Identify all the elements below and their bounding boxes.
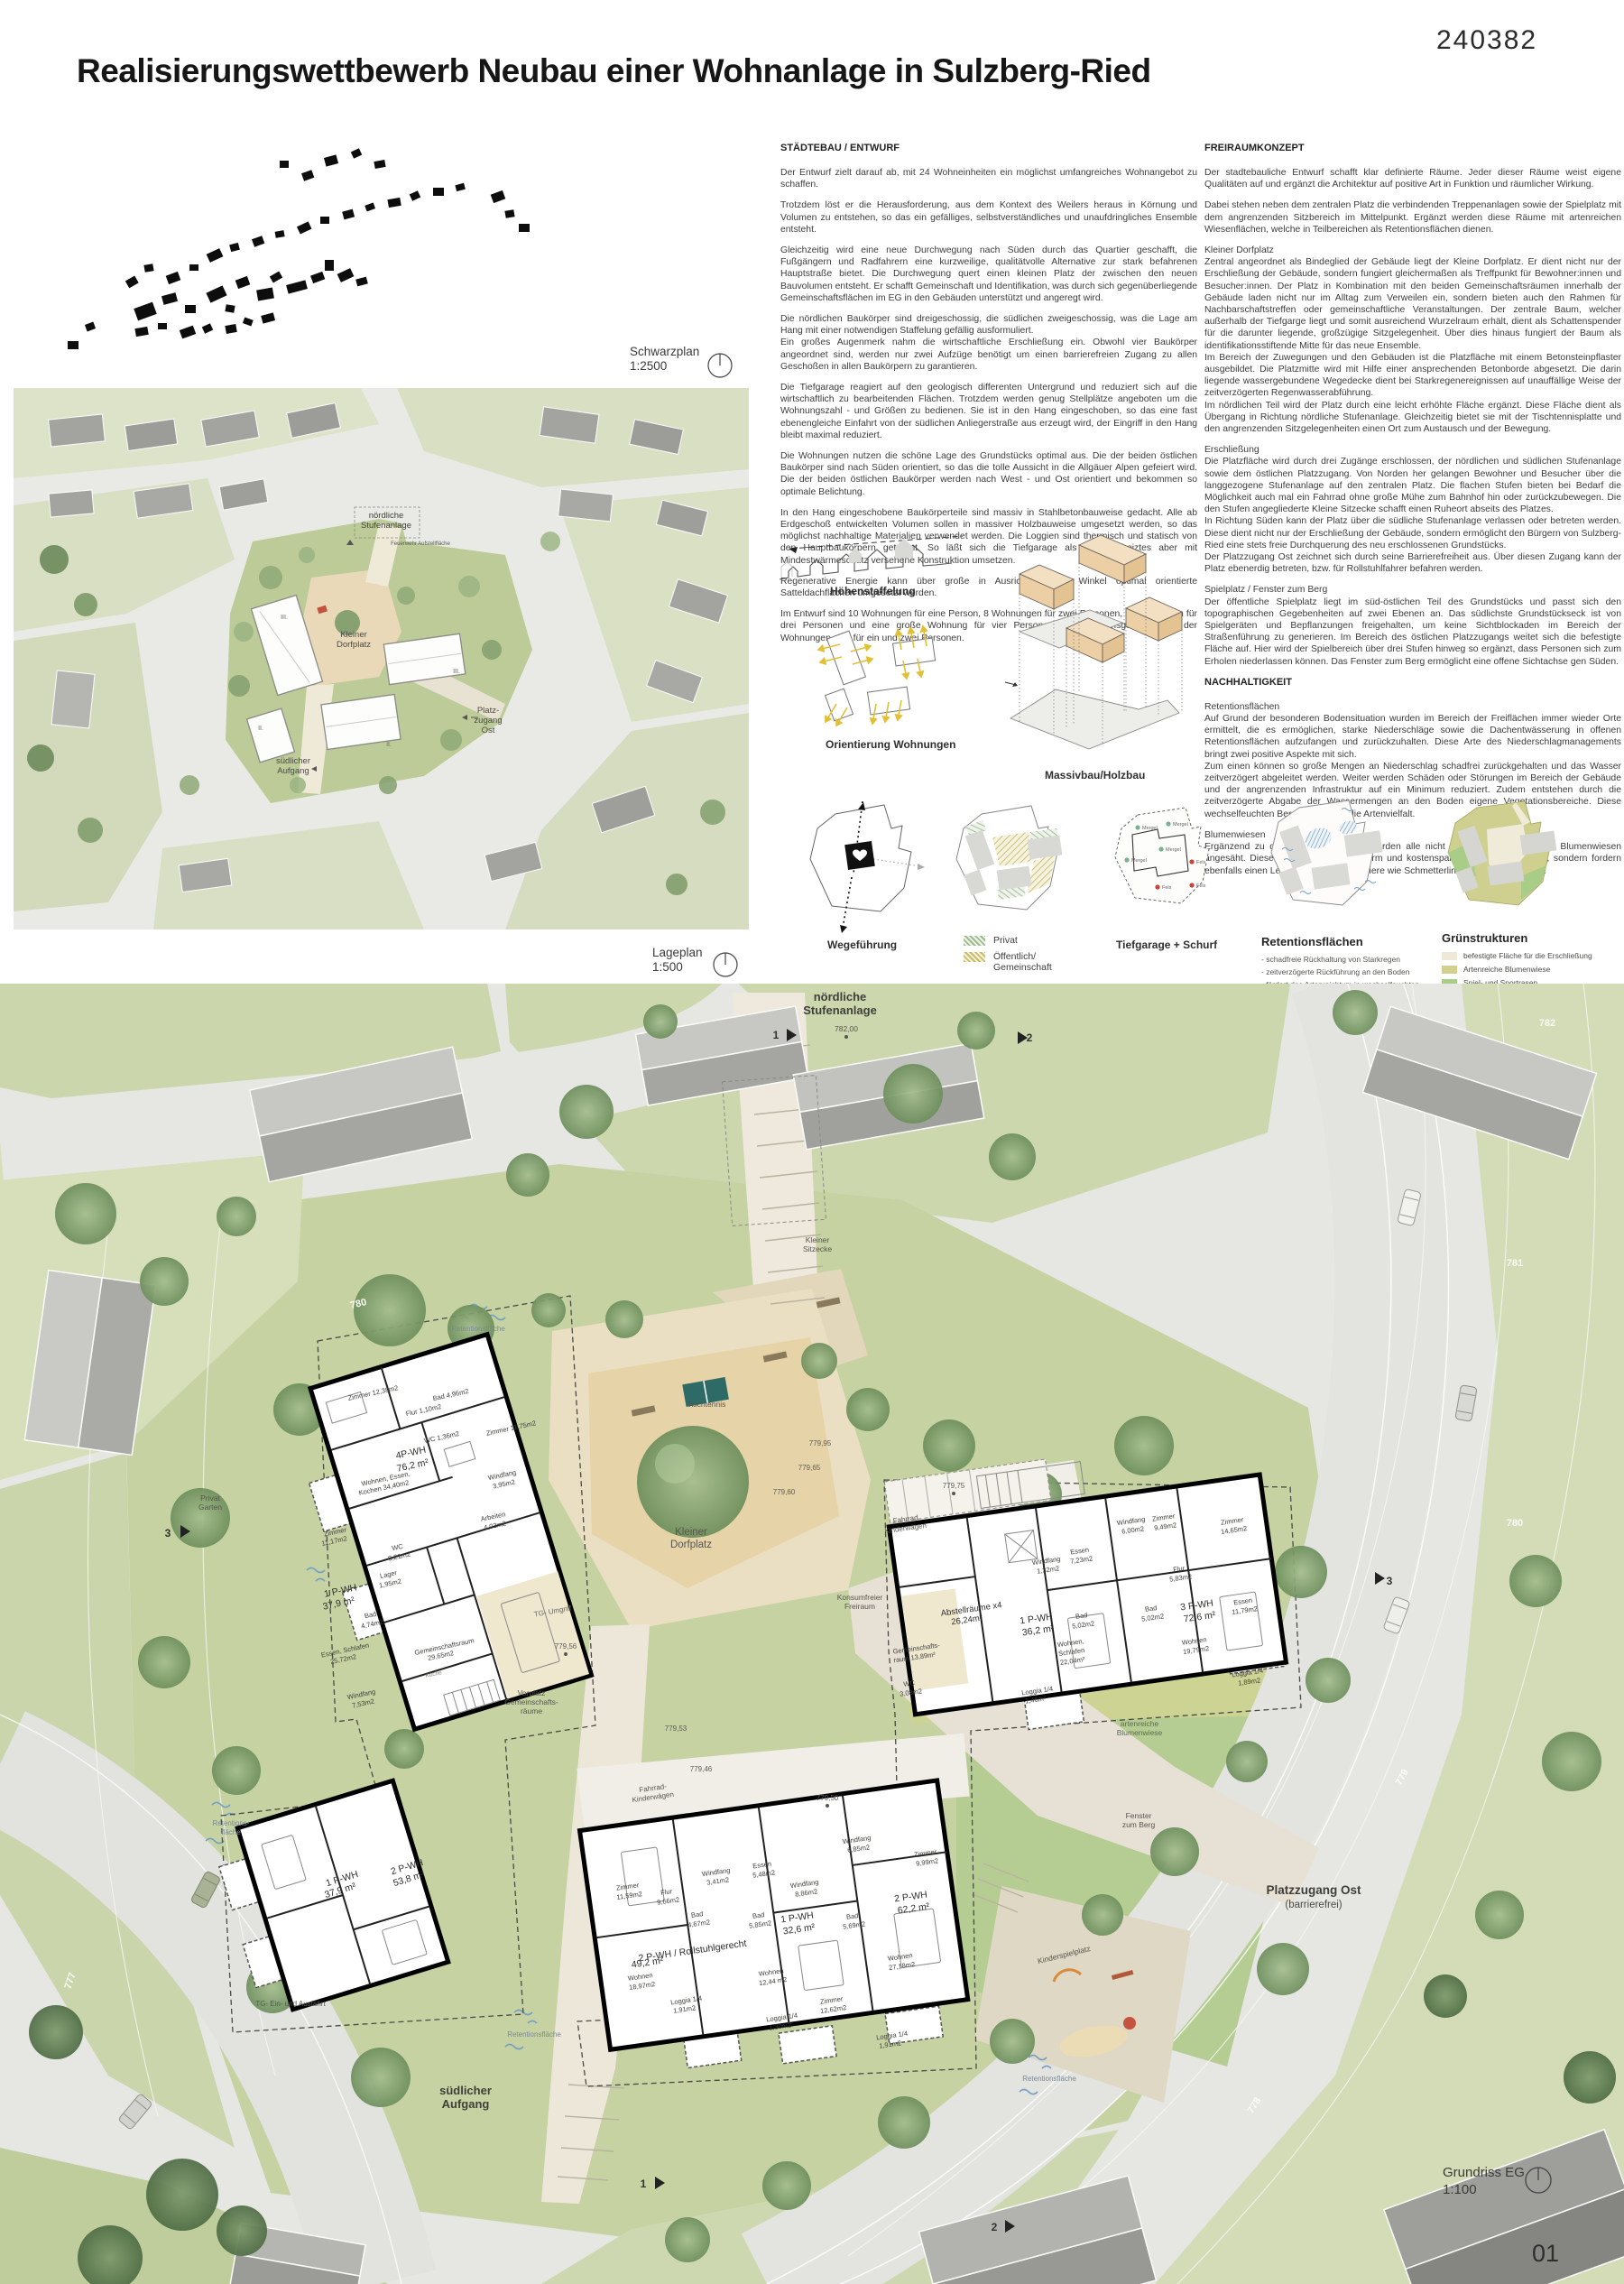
plan-label: Aufgang: [442, 2097, 490, 2111]
legend-oeff-label: Öffentlich/Gemeinschaft: [993, 951, 1052, 973]
diagram-wegefuehrung: [801, 801, 927, 935]
column-heading: FREIRAUMKONZEPT: [1204, 143, 1621, 155]
plan-label: 779,56: [555, 1642, 577, 1651]
plan-label: Kleiner: [675, 1527, 707, 1538]
lageplan-caption: Lageplan 1:500: [652, 946, 703, 974]
legend-oeff-line2: Gemeinschaft: [993, 962, 1052, 973]
page-title: Realisierungswettbewerb Neubau einer Woh…: [77, 52, 1151, 90]
plan-label: 3: [1387, 1575, 1393, 1587]
column-paragraph: Der Entwurf zielt darauf ab, mit 24 Wohn…: [780, 167, 1197, 190]
svg-text:Fels: Fels: [1196, 883, 1206, 889]
plan-label: Blumenwiese: [1117, 1728, 1163, 1737]
plan-label: zum Berg: [1122, 1820, 1156, 1829]
plan-label: 779,75: [943, 1482, 965, 1490]
column-paragraph: Die Tiefgarage reagiert auf den geologis…: [780, 382, 1197, 441]
plan-label: Kleiner: [340, 630, 367, 640]
plan-label: 779,95: [809, 1439, 832, 1447]
plan-label: Retentions-: [213, 1819, 250, 1827]
diagram-tiefgarage: Mergel Mergel Mergel Mergel Fels Fels Fe…: [1105, 806, 1227, 919]
column-paragraph: Der Platzzugang Ost zeichnet sich durch …: [1204, 551, 1621, 575]
privat-swatch: [964, 936, 985, 946]
svg-text:Mergel: Mergel: [1166, 847, 1181, 853]
column-paragraph: Die nördlichen Baukörper sind dreigescho…: [780, 313, 1197, 337]
plan-label: Ost: [482, 726, 495, 735]
plan-label: Bad: [752, 1910, 764, 1920]
diagram-hoehenstaffelung: [778, 532, 990, 587]
plan-label: Retentionsfläche: [507, 2030, 561, 2039]
plan-label: 779,50: [817, 1794, 839, 1802]
plan-label: III.: [453, 669, 460, 675]
plan-label: Bad: [1144, 1604, 1157, 1614]
plan-label: TG- Ein- und Ausfahrt: [255, 2000, 326, 2008]
plan-label: 780: [1507, 1518, 1523, 1529]
plan-label: Platz-: [477, 706, 499, 716]
plan-label: südlicher: [276, 756, 310, 766]
column-subheading: Spielplatz / Fenster zum Berg: [1204, 584, 1621, 596]
plan-label: 782,00: [835, 1024, 858, 1033]
plan-label: Grundriss EG: [1443, 2165, 1525, 2180]
plan-label: 3: [165, 1527, 171, 1540]
plan-label: Feuerwehr Aufstellfläche: [391, 541, 450, 547]
plan-label: 779,53: [665, 1725, 687, 1733]
column-freiraum: FREIRAUMKONZEPTDer stadtebauliche Entwur…: [1204, 143, 1621, 886]
schwarzplan-caption: Schwarzplan 1:2500: [630, 345, 699, 373]
plan-label: II.: [386, 742, 392, 748]
gruen-legend-label: befestigte Fläche für die Erschließung: [1463, 951, 1592, 960]
svg-text:Mergel: Mergel: [1142, 826, 1158, 831]
plan-label: II.: [258, 726, 263, 732]
plan-label: Aufgang: [277, 766, 309, 776]
column-paragraph: In Richtung Süden kann der Platz über di…: [1204, 515, 1621, 551]
plan-label: Kleiner: [806, 1235, 830, 1244]
plan-label: Retentionsfläche: [1022, 2075, 1076, 2083]
plan-label: 779,65: [798, 1464, 821, 1472]
plan-label: (barrierefrei): [1285, 1900, 1342, 1910]
retention-bullet: - zeitverzögerte Rückführung an den Bode…: [1261, 967, 1442, 976]
nutzung-legend: Privat Öffentlich/Gemeinschaft: [964, 935, 1117, 978]
column-paragraph: Dabei stehen neben dem zentralen Platz d…: [1204, 199, 1621, 236]
befestigt-swatch: [1442, 952, 1457, 960]
diagram-orientierung: [807, 621, 952, 736]
lageplan-caption-name: Lageplan: [652, 946, 703, 960]
plan-label: 782: [1539, 1018, 1555, 1029]
plan-label: Stufenanlage: [803, 1003, 877, 1017]
diagram-gruen: [1436, 799, 1581, 918]
plan-label: 1: [773, 1029, 780, 1041]
plan-label: 781: [1507, 1258, 1523, 1269]
plan-label: 779,46: [690, 1765, 713, 1773]
column-paragraph: Im Bereich der Zuwegungen und den Gebäud…: [1204, 352, 1621, 400]
board-number: 240382: [1436, 25, 1537, 56]
column-paragraph: Zentral angeordnet als Bindeglied der Ge…: [1204, 256, 1621, 352]
plan-label: Garten: [198, 1503, 222, 1512]
plan-label: Flur: [1173, 1564, 1186, 1574]
plan-label: Sitzecke: [803, 1244, 832, 1253]
diagram-caption-hoehenstaffelung: Höhenstaffelung: [830, 585, 916, 597]
retention-bullet: - schadfreie Rückhaltung von Starkregen: [1261, 955, 1442, 964]
column-heading: STÄDTEBAU / ENTWURF: [780, 143, 1197, 155]
competition-board: { "header": { "board_number": "240382", …: [0, 0, 1624, 2284]
diagram-caption-tiefgarage: Tiefgarage + Schurf: [1116, 939, 1217, 951]
plan-label: III.: [281, 615, 288, 621]
svg-text:Mergel: Mergel: [1131, 858, 1147, 864]
plan-label: Freiraum: [844, 1602, 875, 1611]
schwarzplan-figure: [54, 116, 641, 386]
plan-label: 2: [992, 2221, 998, 2233]
plan-label: Tischtennis: [687, 1400, 726, 1409]
plan-label: nördliche: [814, 990, 867, 1003]
plan-label: 779,60: [773, 1488, 796, 1496]
column-paragraph: Die Wohnungen nutzen die schöne Lage des…: [780, 450, 1197, 498]
column-subheading: Erschließung: [1204, 444, 1621, 456]
column-subheading: Kleiner Dorfplatz: [1204, 245, 1621, 256]
plaza-tree: [637, 1426, 749, 1538]
svg-text:Fels: Fels: [1196, 860, 1206, 865]
column-paragraph: Ein großes Augenmerk nahm die wirtschaft…: [780, 337, 1197, 373]
north-arrow-icon: [706, 352, 734, 379]
legend-oeff-line1: Öffentlich/: [993, 951, 1052, 962]
plan-label: 1:100: [1443, 2182, 1477, 2197]
plan-label: 1: [641, 2178, 647, 2190]
column-paragraph: Der öffentliche Spielplatz liegt im süd-…: [1204, 596, 1621, 668]
plan-label: Flur: [660, 1887, 674, 1897]
diagram-nutzung: [946, 803, 1081, 928]
diagram-caption-retention: Retentionsflächen: [1261, 935, 1363, 948]
lageplan-caption-scale: 1:500: [652, 960, 703, 975]
plan-label: Dorfplatz: [670, 1540, 712, 1550]
column-paragraph: Gleichzeitig wird eine neue Durchwegung …: [780, 245, 1197, 304]
plan-label: Vorplatz: [518, 1688, 546, 1697]
plan-label: räume: [521, 1706, 542, 1715]
plan-label: zugang: [474, 716, 502, 726]
column-paragraph: Die Platzfläche wird durch drei Zugänge …: [1204, 456, 1621, 515]
plan-label: Gemeinschafts-: [504, 1697, 558, 1706]
plan-label: Platzzugang Ost: [1266, 1883, 1361, 1897]
gruen-legend-label: Artenreiche Blumenwiese: [1463, 965, 1550, 974]
column-heading: NACHHALTIGKEIT: [1204, 677, 1621, 689]
column-subheading: Retentionsflächen: [1204, 701, 1621, 713]
plan-label: südlicher: [439, 2084, 492, 2097]
svg-text:Mergel: Mergel: [1173, 822, 1188, 828]
diagram-retention: [1259, 797, 1407, 923]
plan-label: Dorfplatz: [337, 640, 371, 650]
plan-label: 01: [1532, 2240, 1559, 2267]
plan-label: Bad: [845, 1911, 858, 1921]
plan-label: Fenster: [1126, 1811, 1152, 1820]
blumenwiese-swatch: [1442, 966, 1457, 974]
north-arrow-icon: [712, 951, 739, 978]
plan-label: 2: [1027, 1031, 1033, 1044]
plan-label: Privat: [200, 1493, 220, 1503]
plan-label: Retentionsfläche: [451, 1325, 505, 1333]
plan-label: Stufenanlage: [361, 521, 411, 531]
diagram-caption-gruen: Grünstrukturen: [1442, 931, 1527, 945]
schwarzplan-buildings: [68, 148, 530, 349]
plan-label: artenreiche: [1121, 1719, 1159, 1728]
plan-label: fläche: [221, 1828, 241, 1836]
grundriss-eg-plan: nördlicheStufenanlage782,00südlicherAufg…: [0, 984, 1624, 2284]
column-paragraph: Im nördlichen Teil wird der Platz durch …: [1204, 400, 1621, 436]
plan-label: WC: [903, 1678, 916, 1688]
oeffentlich-swatch: [964, 952, 985, 962]
plan-label: Bad: [690, 1909, 703, 1919]
column-paragraph: Auf Grund der besonderen Bodensituation …: [1204, 713, 1621, 761]
diagram-caption-massivbau: Massivbau/Holzbau: [1045, 769, 1145, 781]
lageplan: nördlicheStufenanlageFeuerwehr Aufstellf…: [14, 388, 749, 929]
schwarzplan-caption-scale: 1:2500: [630, 359, 699, 374]
column-paragraph: Trotzdem löst er die Herausforderung, au…: [780, 199, 1197, 236]
diagram-caption-orientierung: Orientierung Wohnungen: [826, 738, 955, 751]
legend-privat-label: Privat: [993, 935, 1018, 946]
plan-label: nördliche: [369, 511, 404, 521]
diagram-massivbau: [1003, 522, 1188, 763]
plan-label: Bad: [1075, 1611, 1087, 1621]
column-paragraph: Der stadtebauliche Entwurf schafft klar …: [1204, 167, 1621, 190]
diagram-caption-wegefuehrung: Wegeführung: [827, 939, 897, 951]
svg-text:Fels: Fels: [1162, 885, 1172, 891]
plan-label: Konsumfreier: [837, 1593, 883, 1602]
schwarzplan-caption-name: Schwarzplan: [630, 345, 699, 359]
